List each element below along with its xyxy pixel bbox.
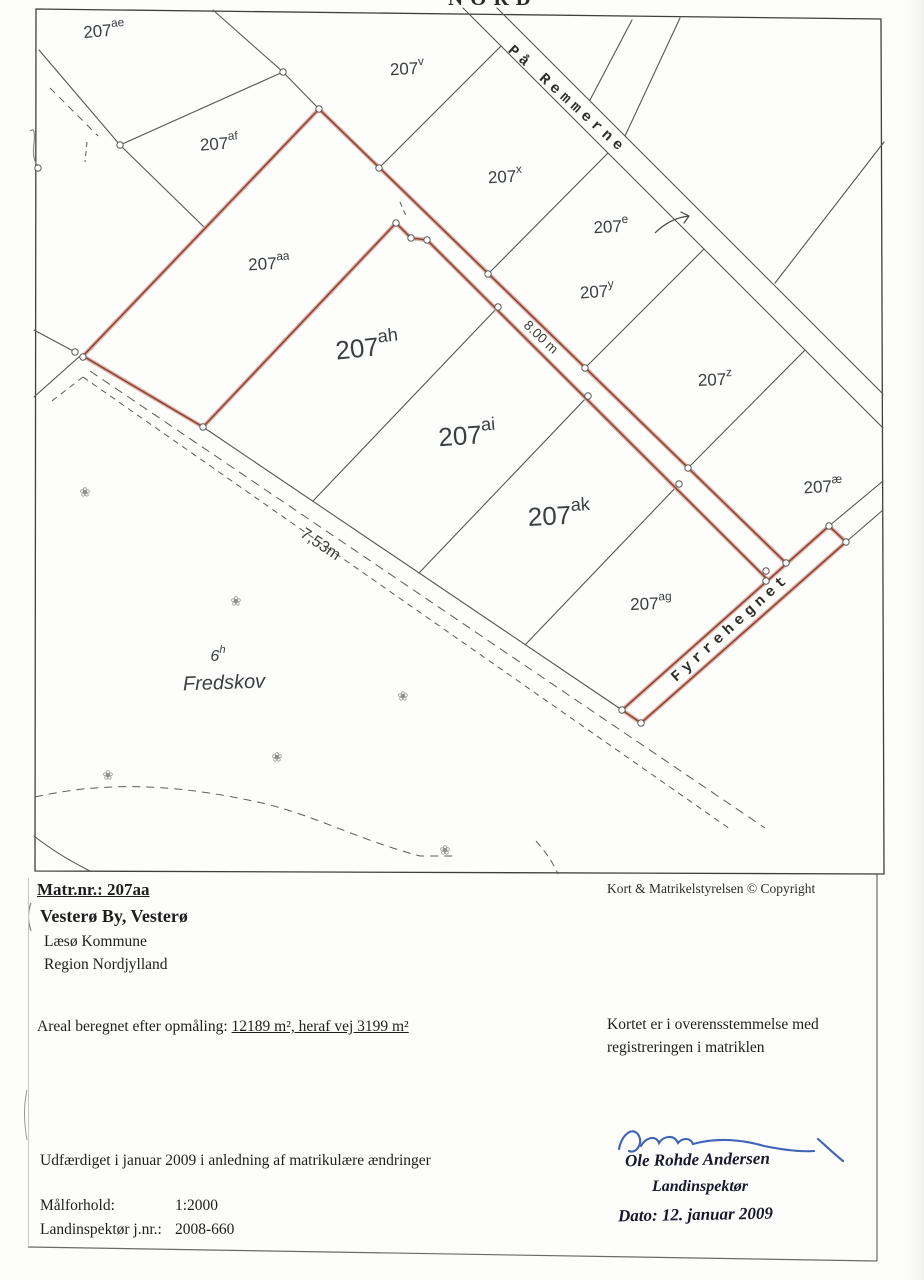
parcel-label-207x: 207x [487, 166, 522, 186]
ejerlav-line: Vesterø By, Vesterø [40, 906, 188, 927]
parcel-207e-arrow-icon [655, 212, 689, 233]
parcel-label-207ae-lig: 207æ [803, 476, 843, 497]
parcel-label-207z: 207z [698, 369, 733, 389]
forest-symbol-icon: ❀ [398, 690, 409, 705]
signature-title: Landinspektør [652, 1178, 748, 1196]
parcel-label-207ag: 207ag [630, 593, 672, 613]
forest-label: Fredskov [183, 672, 266, 695]
kommune-line: Læsø Kommune [44, 933, 147, 951]
forest-symbol-icon: ❀ [440, 844, 451, 859]
parcel-label-207v: 207v [389, 58, 424, 78]
forest-symbol-icon: ❀ [231, 595, 242, 610]
jnr-value: 2008-660 [175, 1221, 234, 1239]
dashed-track-lines [35, 88, 765, 874]
parcel-label-6h: 6h [210, 647, 225, 665]
matr-nr-title: Matr.nr.: 207aa [37, 880, 150, 900]
footer-rules [28, 874, 877, 1261]
cadastral-map-page: NORD 207ae 207v 207af 207x 207e 207aa 20… [0, 0, 924, 1280]
parcel-label-207aa: 207aa [248, 253, 291, 274]
region-line: Region Nordjylland [44, 956, 168, 974]
copyright-line: Kort & Matrikelstyrelsen © Copyright [607, 881, 815, 897]
parcel-label-207ak: 207ak [527, 498, 591, 530]
konsistens-line-2: registreringen i matriklen [607, 1039, 765, 1057]
udfaerdiget-line: Udfærdiget i januar 2009 i anledning af … [40, 1152, 431, 1170]
north-label: NORD [448, 0, 538, 11]
forest-symbol-icon: ❀ [80, 486, 91, 501]
parcel-label-207af: 207af [199, 132, 239, 153]
forest-symbol-icon: ❀ [272, 751, 283, 766]
maalforhold-label: Målforhold: [40, 1197, 115, 1215]
signature-name: Ole Rohde Andersen [625, 1149, 770, 1172]
parcel-label-207ai: 207ai [437, 418, 496, 451]
scan-edge-shading [904, 0, 924, 1280]
signature-date: Dato: 12. januar 2009 [618, 1204, 773, 1227]
areal-line: Areal beregnet efter opmåling: 12189 m²,… [37, 1018, 409, 1036]
parcel-label-207y: 207y [579, 280, 615, 301]
areal-value: 12189 m², heraf vej 3199 m² [232, 1018, 409, 1035]
parcel-label-207e: 207e [593, 216, 629, 236]
parcel-label-207ae: 207ae [82, 19, 125, 41]
forest-symbol-icon: ❀ [103, 769, 114, 784]
jnr-label: Landinspektør j.nr.: [40, 1221, 162, 1239]
konsistens-line-1: Kortet er i overensstemmelse med [607, 1016, 819, 1034]
maalforhold-value: 1:2000 [175, 1197, 218, 1215]
map-drawing [0, 0, 924, 1280]
